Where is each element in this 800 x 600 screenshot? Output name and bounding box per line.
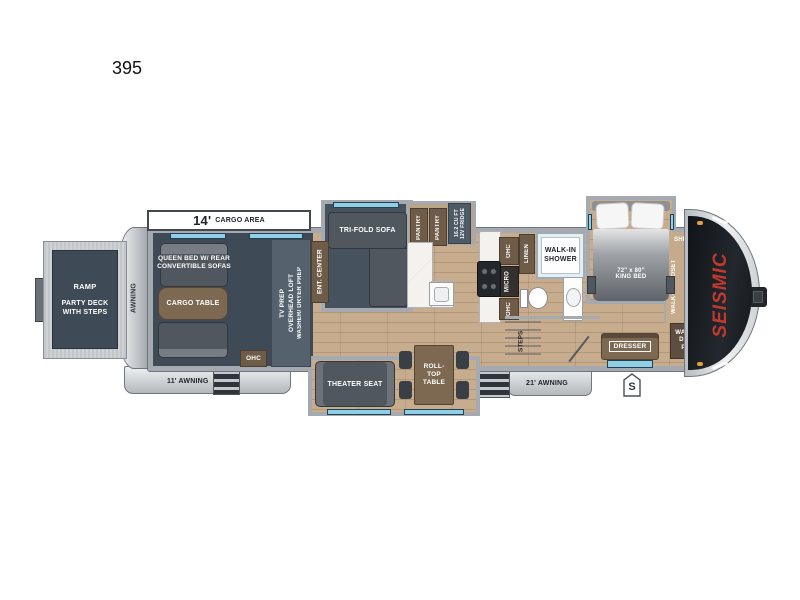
- vanity-sink: [566, 288, 581, 307]
- loft-column: TV PREP OVERHEAD LOFT WASHER/ DRYER PREP: [271, 239, 311, 367]
- party-deck-label: PARTY DECK WITH STEPS: [56, 300, 114, 317]
- cargo-table-label: CARGO TABLE: [166, 300, 219, 307]
- toilet-tank: [520, 289, 528, 308]
- garage-ohc-label: OHC: [246, 355, 261, 362]
- dining-chair: [399, 381, 412, 399]
- tri-fold-sofa: TRI-FOLD SOFA: [328, 212, 407, 249]
- awning-21ft-label: 21' AWNING: [526, 380, 568, 387]
- cargo-area-label: CARGO AREA: [215, 217, 265, 224]
- bath-vanity: [563, 277, 583, 321]
- tv-prep-label: TV PREP: [279, 240, 286, 366]
- bedroom-window: [607, 360, 653, 368]
- garage-sofa: [158, 322, 228, 358]
- kitchen-ohc-upper: OHC: [499, 237, 519, 265]
- pillow-left: [595, 202, 629, 230]
- fridge: 16.2 CU FT 12V FRIDGE: [448, 203, 471, 244]
- sofa-slide-window: [333, 202, 399, 208]
- ent-center-label: ENT. CENTER: [312, 242, 328, 302]
- kitchen-sink: [429, 282, 454, 306]
- roll-top-table-label: ROLL-TOP TABLE: [417, 363, 451, 387]
- floorplan-canvas: 395 AWNING RAMP PARTY DECK WITH STEPS 11…: [0, 0, 800, 600]
- slide-window-right: [404, 409, 464, 415]
- marker-light-bottom: [697, 362, 703, 366]
- party-deck: RAMP PARTY DECK WITH STEPS: [52, 250, 118, 349]
- ent-center: ENT. CENTER: [311, 241, 329, 303]
- pantry-1-label: PANTRY: [411, 209, 427, 245]
- king-bed: 72" x 80" KING BED: [593, 229, 669, 301]
- roll-top-table: ROLL-TOP TABLE: [414, 345, 454, 405]
- linen-label: LINEN: [520, 235, 534, 273]
- kitchen-ohc-upper-label: OHC: [500, 238, 518, 264]
- marker-light-top: [697, 221, 703, 225]
- walk-in-shower-label: WALK-IN SHOWER: [541, 247, 581, 265]
- bed-slide-window-left: [588, 214, 592, 230]
- slide-window-left: [327, 409, 391, 415]
- loft-washer-dryer-label: WASHER/ DRYER PREP: [297, 240, 303, 366]
- pantry-1: PANTRY: [410, 208, 428, 246]
- nightstand-left: [587, 276, 596, 294]
- brand-logo: SEISMIC: [710, 240, 734, 350]
- queen-bed-garage-label: QUEEN BED W/ REAR CONVERTIBLE SOFAS: [150, 255, 238, 271]
- dresser-label: DRESSER: [609, 341, 652, 352]
- awning-11ft-label: 11' AWNING: [167, 378, 209, 385]
- pillow-right: [630, 202, 664, 230]
- nightstand-right: [666, 276, 675, 294]
- s-marker-letter: S: [628, 381, 635, 393]
- stove: [477, 261, 501, 297]
- cargo-length-label: 14': [193, 213, 211, 228]
- tri-fold-sofa-label: TRI-FOLD SOFA: [339, 227, 395, 234]
- overhead-loft-label: OVERHEAD LOFT: [288, 240, 295, 366]
- dining-chair: [456, 351, 469, 369]
- bed-slide-window-right: [670, 214, 674, 230]
- king-bed-label: KING BED: [616, 274, 647, 280]
- sink-basin: [434, 287, 449, 302]
- garage-window-left: [170, 233, 226, 239]
- linen-cabinet: LINEN: [519, 234, 535, 274]
- bath-wall: [505, 316, 600, 319]
- theater-seat-label: THEATER SEAT: [327, 381, 382, 388]
- dresser: DRESSER: [601, 333, 659, 360]
- dining-chair: [399, 351, 412, 369]
- s-marker-shield: S: [623, 373, 641, 397]
- toilet: [528, 287, 548, 309]
- cargo-area-callout: 14' CARGO AREA: [147, 210, 311, 231]
- walk-in-shower: WALK-IN SHOWER: [536, 232, 585, 279]
- pantry-2: PANTRY: [429, 208, 447, 246]
- pantry-2-label: PANTRY: [430, 209, 446, 245]
- cargo-table: CARGO TABLE: [158, 287, 228, 320]
- fridge-label-2: 12V FRIDGE: [460, 204, 466, 243]
- page-title: 395: [112, 58, 142, 79]
- theater-seat: THEATER SEAT: [315, 361, 395, 407]
- sofa-chaise: [369, 248, 408, 307]
- fridge-label-1: 16.2 CU FT: [454, 204, 460, 243]
- dining-chair: [456, 381, 469, 399]
- garage-ohc-cabinet: OHC: [240, 350, 267, 367]
- interior-steps-label: STEPS: [515, 323, 527, 359]
- ramp-label: RAMP: [74, 282, 97, 291]
